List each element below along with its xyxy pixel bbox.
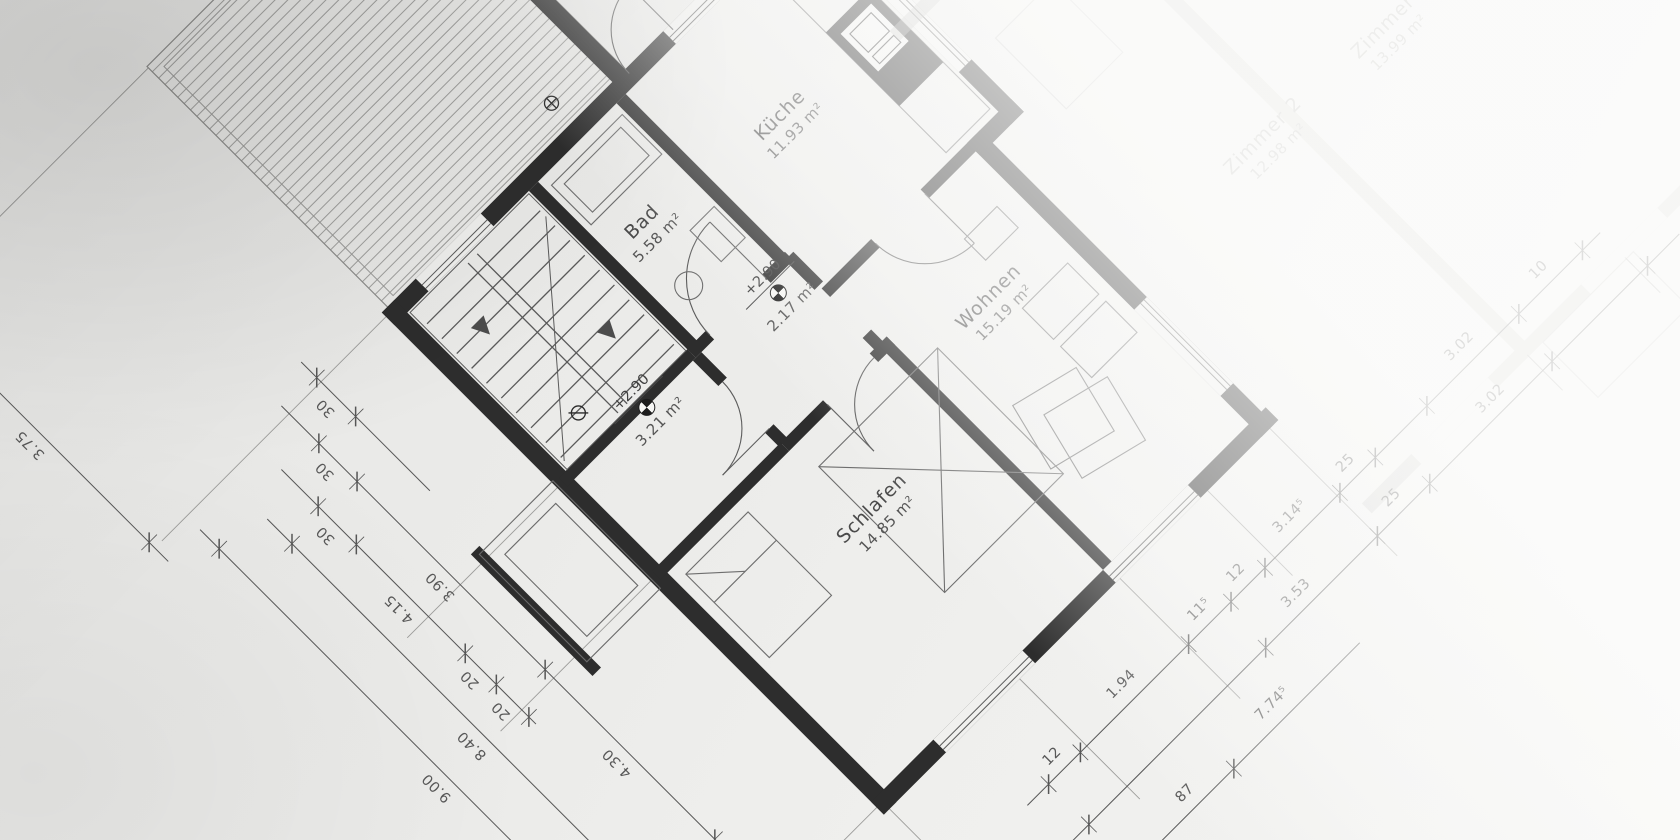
- entrance-porch: [479, 481, 660, 662]
- floorplan-drawing: Küche 11.93 m² Bad 5.58 m² Wohnen 15.19 …: [0, 0, 1680, 840]
- neighbor-apartment: [889, 0, 1680, 568]
- floorplan-photo: Küche 11.93 m² Bad 5.58 m² Wohnen 15.19 …: [0, 0, 1680, 840]
- plan-linework: [0, 0, 1680, 840]
